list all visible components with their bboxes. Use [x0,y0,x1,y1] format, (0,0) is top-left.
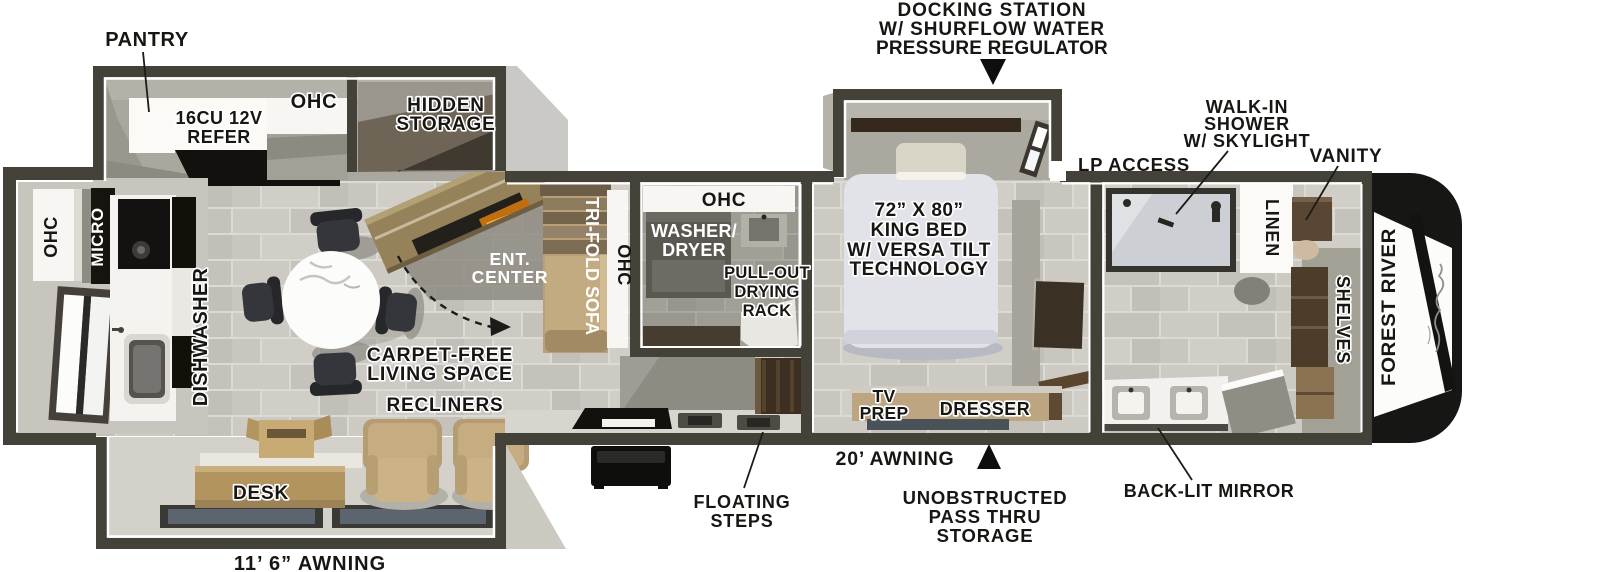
svg-text:LIVING SPACE: LIVING SPACE [367,363,513,385]
svg-text:LINEN: LINEN [1262,199,1282,257]
svg-text:ENT.: ENT. [489,249,530,269]
svg-text:16CU 12V: 16CU 12V [175,108,262,128]
svg-text:SHELVES: SHELVES [1333,276,1353,364]
svg-text:W/ SKYLIGHT: W/ SKYLIGHT [1184,131,1311,151]
svg-text:72” X 80”: 72” X 80” [875,200,964,221]
svg-text:OHC: OHC [41,216,61,258]
svg-text:VANITY: VANITY [1309,146,1382,167]
svg-text:REFER: REFER [187,127,251,147]
svg-text:FLOATING: FLOATING [693,492,790,512]
svg-text:STEPS: STEPS [710,511,773,531]
svg-text:W/ SHURFLOW WATER: W/ SHURFLOW WATER [879,19,1105,40]
svg-text:PREP: PREP [860,403,909,423]
svg-text:CENTER: CENTER [472,267,549,287]
svg-text:OHC: OHC [702,190,747,211]
svg-text:W/ VERSA TILT: W/ VERSA TILT [847,240,991,261]
svg-text:TECHNOLOGY: TECHNOLOGY [849,259,988,280]
svg-text:MICRO: MICRO [88,207,107,266]
svg-text:20’ AWNING: 20’ AWNING [836,448,955,470]
svg-text:TRI-FOLD SOFA: TRI-FOLD SOFA [582,197,602,335]
svg-text:LP ACCESS: LP ACCESS [1078,154,1190,175]
svg-text:UNOBSTRUCTED: UNOBSTRUCTED [903,487,1068,508]
svg-text:OHC: OHC [291,91,338,113]
svg-text:PRESSURE REGULATOR: PRESSURE REGULATOR [876,38,1108,59]
svg-text:OHC: OHC [614,244,634,286]
svg-text:STORAGE: STORAGE [937,525,1034,546]
svg-text:KING BED: KING BED [871,220,968,241]
svg-text:FOREST RIVER: FOREST RIVER [1379,228,1400,386]
svg-text:DRYING: DRYING [734,283,799,301]
svg-text:11’ 6” AWNING: 11’ 6” AWNING [234,553,386,572]
svg-text:PASS THRU: PASS THRU [929,506,1042,527]
svg-text:RACK: RACK [743,302,792,320]
svg-text:WASHER/: WASHER/ [651,221,737,241]
svg-text:STORAGE: STORAGE [396,114,495,135]
svg-text:RECLINERS: RECLINERS [387,395,504,416]
svg-text:BACK-LIT MIRROR: BACK-LIT MIRROR [1124,481,1294,501]
svg-text:DESK: DESK [233,483,289,504]
svg-text:DRYER: DRYER [662,240,726,260]
svg-text:DISHWASHER: DISHWASHER [190,267,212,406]
svg-text:PULL-OUT: PULL-OUT [724,264,810,282]
svg-text:DOCKING STATION: DOCKING STATION [897,0,1086,21]
svg-text:PANTRY: PANTRY [105,29,189,51]
svg-text:DRESSER: DRESSER [940,399,1031,419]
svg-text:HIDDEN: HIDDEN [407,95,485,116]
